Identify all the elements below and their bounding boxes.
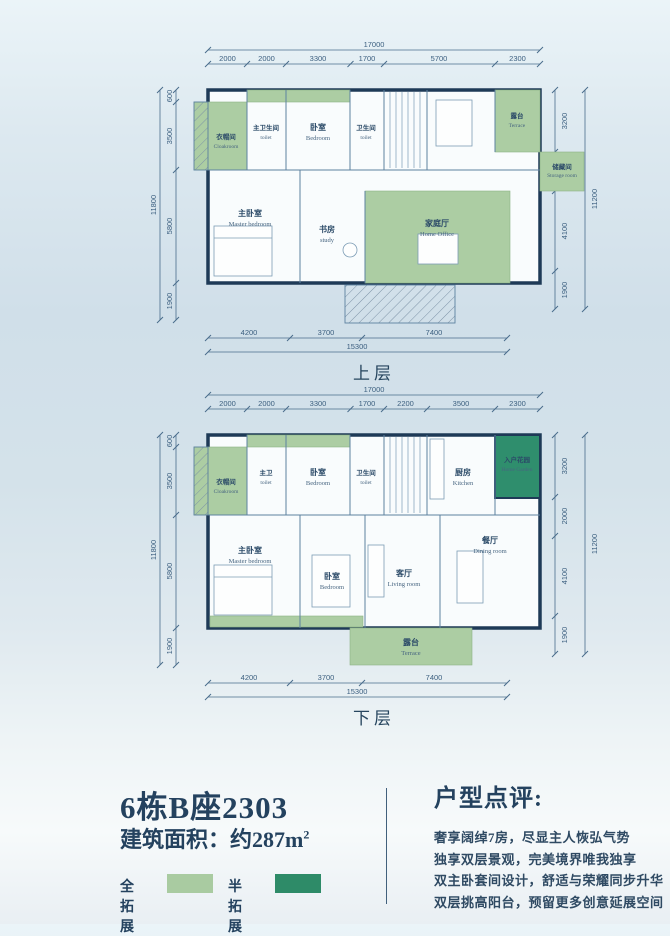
dim-label-total: 11200: [590, 189, 599, 209]
dim-label: 2000: [560, 508, 569, 525]
room-label-home-office: 家庭厅: [425, 218, 449, 228]
room-label-study-en: study: [320, 237, 335, 244]
dim-label: 2000: [219, 54, 236, 63]
bedroom-bed: [312, 555, 350, 607]
dim-label: 4100: [560, 568, 569, 585]
upper-right-dimensions: 3200 2000 4100 1900 11200: [552, 87, 599, 312]
room-label-home-garden: 入户花园: [503, 455, 531, 464]
sofa: [436, 100, 472, 146]
lower-right-dimensions: 3200 2000 4100 1900 11200: [552, 432, 599, 657]
dim-label: 3200: [560, 113, 569, 130]
study-table: [343, 243, 357, 257]
dim-label: 3500: [165, 473, 174, 490]
room-label-bedroom-en: Bedroom: [306, 135, 330, 142]
room-label-bedroom2-en: Bedroom: [320, 584, 344, 591]
kitchen-counter: [430, 439, 444, 499]
review-line: 双层挑高阳台，预留更多创意延展空间: [434, 892, 664, 914]
double-height-void: [345, 285, 455, 323]
room-label-dining-en: Dining room: [473, 548, 506, 555]
room-label-terrace: 露台: [403, 637, 419, 647]
dim-ticks: [552, 87, 588, 312]
terrace-area: [495, 90, 540, 152]
room-label-toilet-en: toilet: [360, 480, 372, 486]
room-label-study: 书房: [319, 224, 335, 234]
legend-half-extension-label: 半拓展: [228, 876, 242, 936]
room-label-cloakroom: 衣帽间: [216, 132, 236, 141]
room-label-storage: 储藏间: [551, 162, 572, 171]
bottom-balcony-strip: [210, 616, 363, 627]
room-label-bedroom1: 卧室: [310, 467, 326, 477]
legend-full-extension-label: 全拓展: [120, 876, 134, 936]
dim-label: 1700: [359, 399, 376, 408]
room-label-toilet-en: toilet: [360, 135, 372, 141]
dim-label-total: 17000: [364, 385, 385, 394]
review-column: 户型点评: 奢享阔绰7房，尽显主人恢弘气势 独享双层景观，完美境界唯我独享 双主…: [434, 778, 664, 913]
room-label-living-en: Living room: [388, 581, 421, 588]
dim-label: 5700: [431, 54, 448, 63]
lower-floor-label: 下层: [353, 709, 395, 728]
room-label-living: 客厅: [395, 568, 412, 578]
room-label-storage-en: Storage room: [547, 173, 578, 179]
dim-label: 2300: [509, 54, 526, 63]
upper-floor-label: 上层: [353, 364, 395, 383]
upper-bottom-dimensions: 4200 3700 7400 15300: [205, 328, 510, 355]
dim-label: 7400: [426, 673, 443, 682]
dim-label: 600: [165, 90, 174, 103]
dim-label-total: 17000: [364, 40, 385, 49]
dim-ticks: [552, 432, 588, 657]
dim-label: 3300: [310, 54, 327, 63]
legend-half-extension-swatch: [275, 874, 321, 893]
home-office-table: [418, 234, 458, 264]
dim-label: 1900: [560, 282, 569, 299]
built-area-text: 建筑面积：约287m: [120, 827, 303, 852]
review-lines: 奢享阔绰7房，尽显主人恢弘气势 独享双层景观，完美境界唯我独享 双主卧套间设计，…: [434, 827, 664, 913]
dim-label-total: 11200: [590, 534, 599, 554]
master-bed: [214, 565, 272, 615]
dim-label: 2200: [397, 399, 414, 408]
dim-label: 1700: [359, 54, 376, 63]
dim-label: 7400: [426, 328, 443, 337]
legend-full-extension-swatch: [167, 874, 213, 893]
upper-top-dimensions: 17000 2000 2000 3300 1700 5700 2300: [205, 40, 543, 67]
room-label-bedroom2: 卧室: [324, 571, 340, 581]
room-label-home-garden-en: Home Garden: [501, 467, 532, 473]
dim-label: 3500: [165, 128, 174, 145]
dim-label: 600: [165, 435, 174, 448]
lower-bottom-dimensions: 4200 3700 7400 15300: [205, 673, 510, 700]
room-label-home-office-en: Home Office: [420, 231, 454, 238]
room-label-kitchen-en: Kitchen: [453, 480, 474, 487]
dim-label: 5800: [165, 563, 174, 580]
lower-left-dimensions: 11800 600 3500 5800 1900: [149, 432, 179, 668]
sofa: [368, 545, 384, 597]
room-label-bedroom: 卧室: [310, 122, 326, 132]
dim-label: 2000: [258, 399, 275, 408]
room-label-master-toilet: 主卫: [260, 468, 274, 477]
dim-label: 2300: [509, 399, 526, 408]
dim-label: 4100: [560, 223, 569, 240]
room-label-bedroom1-en: Bedroom: [306, 480, 330, 487]
wardrobe-hatch: [194, 102, 208, 170]
review-line: 奢享阔绰7房，尽显主人恢弘气势: [434, 827, 664, 849]
room-label-terrace-en: Terrace: [509, 123, 526, 129]
dim-label: 1900: [560, 627, 569, 644]
dim-label: 11800: [149, 540, 158, 560]
room-label-master-toilet: 主卫生间: [253, 123, 280, 132]
room-label-cloakroom: 衣帽间: [216, 477, 236, 486]
unit-title: 6栋B座2303: [120, 782, 288, 827]
room-label-dining: 餐厅: [481, 535, 498, 545]
upper-left-dimensions: 11800 600 3500 5800 1900: [149, 87, 179, 323]
storage-area: [540, 152, 584, 191]
master-bed: [214, 226, 272, 276]
room-label-master-bedroom: 主卧室: [238, 545, 262, 555]
room-label-master-bedroom: 主卧室: [238, 208, 262, 218]
room-label-master-toilet-en: toilet: [260, 480, 272, 486]
vertical-divider: [386, 788, 387, 904]
dim-label: 4200: [241, 673, 258, 682]
room-label-cloakroom-en: Cloakroom: [214, 489, 239, 495]
room-label-terrace-en: Terrace: [401, 650, 421, 657]
room-label-cloakroom-en: Cloakroom: [214, 144, 239, 150]
square-meter-sup: 2: [303, 828, 309, 842]
room-label-master-bedroom-en: Master bedroom: [229, 221, 272, 228]
info-section: 6栋B座2303 建筑面积：约287m2 全拓展 半拓展 户型点评: 奢享阔绰7…: [0, 778, 670, 918]
dim-label: 3700: [318, 328, 335, 337]
lower-floor-plan: 17000 2000 2000 3300 1700 2200 3500 2300…: [0, 383, 670, 751]
room-label-master-bedroom-en: Master bedroom: [229, 558, 272, 565]
review-title: 户型点评:: [434, 778, 664, 813]
dim-label: 3300: [310, 399, 327, 408]
balcony-band: [247, 435, 350, 447]
balcony-band: [247, 90, 350, 102]
review-line: 双主卧套间设计，舒适与荣耀同步升华: [434, 870, 664, 892]
room-label-toilet: 卫生间: [356, 123, 376, 132]
dim-label: 2000: [258, 54, 275, 63]
room-label-terrace: 露台: [511, 111, 525, 120]
dim-label: 4200: [241, 328, 258, 337]
built-area: 建筑面积：约287m2: [120, 822, 309, 854]
wardrobe-hatch: [194, 447, 208, 515]
dim-label: 1900: [165, 638, 174, 655]
dim-label: 2000: [219, 399, 236, 408]
upper-floor-plan: 17000 2000 2000 3300 1700 5700 2300 1180…: [0, 38, 670, 386]
dining-table: [457, 551, 483, 603]
dim-label: 3700: [318, 673, 335, 682]
lower-top-dimensions: 17000 2000 2000 3300 1700 2200 3500 2300: [205, 385, 543, 412]
dim-label: 5800: [165, 218, 174, 235]
dim-label: 11800: [149, 195, 158, 215]
dim-label: 1900: [165, 293, 174, 310]
dim-label: 3500: [453, 399, 470, 408]
room-label-toilet: 卫生间: [356, 468, 376, 477]
room-label-kitchen: 厨房: [455, 467, 471, 477]
dim-label: 3200: [560, 458, 569, 475]
dim-label-total: 15300: [347, 342, 368, 351]
review-line: 独享双层景观，完美境界唯我独享: [434, 849, 664, 871]
room-label-master-toilet-en: toilet: [260, 135, 272, 141]
dim-label-total: 15300: [347, 687, 368, 696]
